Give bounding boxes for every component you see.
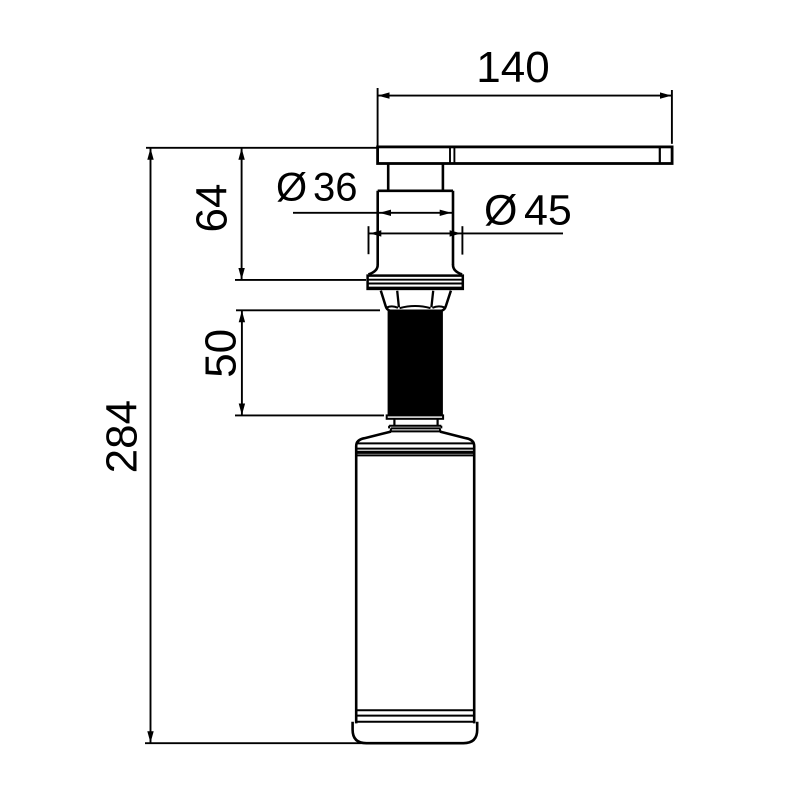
svg-text:Ø: Ø bbox=[276, 166, 307, 210]
svg-text:284: 284 bbox=[98, 400, 147, 473]
svg-text:50: 50 bbox=[197, 329, 246, 378]
svg-text:140: 140 bbox=[476, 43, 549, 92]
svg-text:64: 64 bbox=[187, 184, 236, 233]
svg-text:Ø: Ø bbox=[484, 187, 517, 235]
svg-text:45: 45 bbox=[524, 187, 572, 235]
svg-text:36: 36 bbox=[313, 166, 358, 210]
